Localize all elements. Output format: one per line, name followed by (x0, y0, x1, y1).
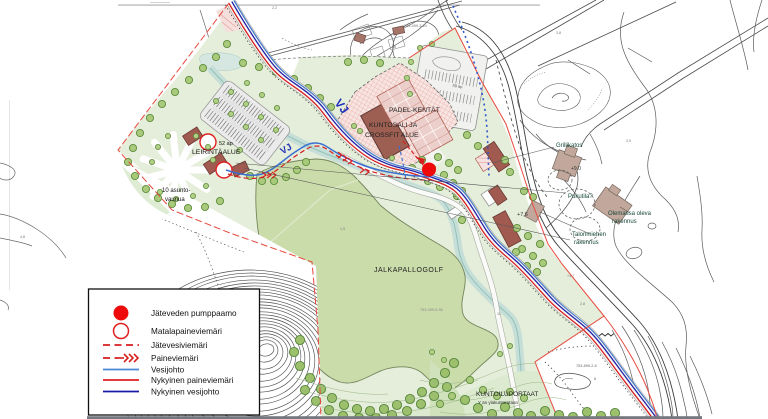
svg-text:1,9: 1,9 (340, 227, 345, 231)
svg-text:753-499-5-55: 753-499-5-55 (420, 308, 443, 312)
svg-text:Pukutila?: Pukutila? (568, 194, 593, 200)
svg-text:Paineviemäri: Paineviemäri (151, 354, 199, 363)
svg-text:Nykyinen vesijohto: Nykyinen vesijohto (151, 388, 220, 397)
svg-text:+7,6: +7,6 (517, 212, 528, 218)
svg-text:rakennus: rakennus (612, 219, 637, 225)
svg-text:CROSSFIT ALUE: CROSSFIT ALUE (365, 132, 419, 139)
svg-text:2,2: 2,2 (272, 6, 277, 10)
svg-text:rakennus: rakennus (574, 240, 599, 246)
svg-text:Matalapaineviemäri: Matalapaineviemäri (151, 327, 222, 336)
svg-text:3,8: 3,8 (556, 31, 561, 35)
svg-text:Grillikatos: Grillikatos (556, 143, 582, 149)
svg-text:+4,7: +4,7 (567, 274, 574, 278)
svg-text:Jäteveden pumppaamo: Jäteveden pumppaamo (151, 309, 237, 318)
svg-text:PADEL-KENTÄT: PADEL-KENTÄT (389, 106, 440, 114)
svg-text:10 asunto-: 10 asunto- (162, 188, 190, 194)
svg-text:4,8: 4,8 (20, 235, 25, 239)
svg-text:LEIRINTÄALUE: LEIRINTÄALUE (192, 148, 241, 156)
svg-text:11: 11 (497, 312, 501, 316)
svg-text:753-899-2-6: 753-899-2-6 (576, 364, 597, 368)
svg-text:vaunua: vaunua (165, 197, 185, 203)
svg-text:Olemassa oleva: Olemassa oleva (608, 211, 652, 217)
svg-text:Vesijohto: Vesijohto (151, 366, 185, 375)
svg-text:2,8: 2,8 (580, 302, 585, 306)
svg-text:Talonmiehen: Talonmiehen (572, 232, 606, 238)
svg-text:+9,0: +9,0 (571, 166, 581, 172)
svg-text:3,9: 3,9 (626, 139, 631, 143)
svg-text:8: 8 (394, 45, 396, 49)
svg-text:Y an ylakuntorataan: Y an ylakuntorataan (478, 400, 518, 405)
svg-text:JALKAPALLOGOLF: JALKAPALLOGOLF (374, 267, 444, 274)
svg-text:KUNTOSALI JA: KUNTOSALI JA (369, 122, 418, 129)
svg-text:753-499-3-24: 753-499-3-24 (404, 24, 427, 28)
svg-text:8: 8 (594, 377, 596, 381)
svg-text:52 ap: 52 ap (219, 141, 233, 147)
svg-text:KUNTOILUPORTAAT: KUNTOILUPORTAAT (476, 391, 538, 398)
svg-text:Nykyinen paineviemäri: Nykyinen paineviemäri (151, 376, 234, 385)
svg-text:Jätevesiviemäri: Jätevesiviemäri (151, 341, 208, 350)
